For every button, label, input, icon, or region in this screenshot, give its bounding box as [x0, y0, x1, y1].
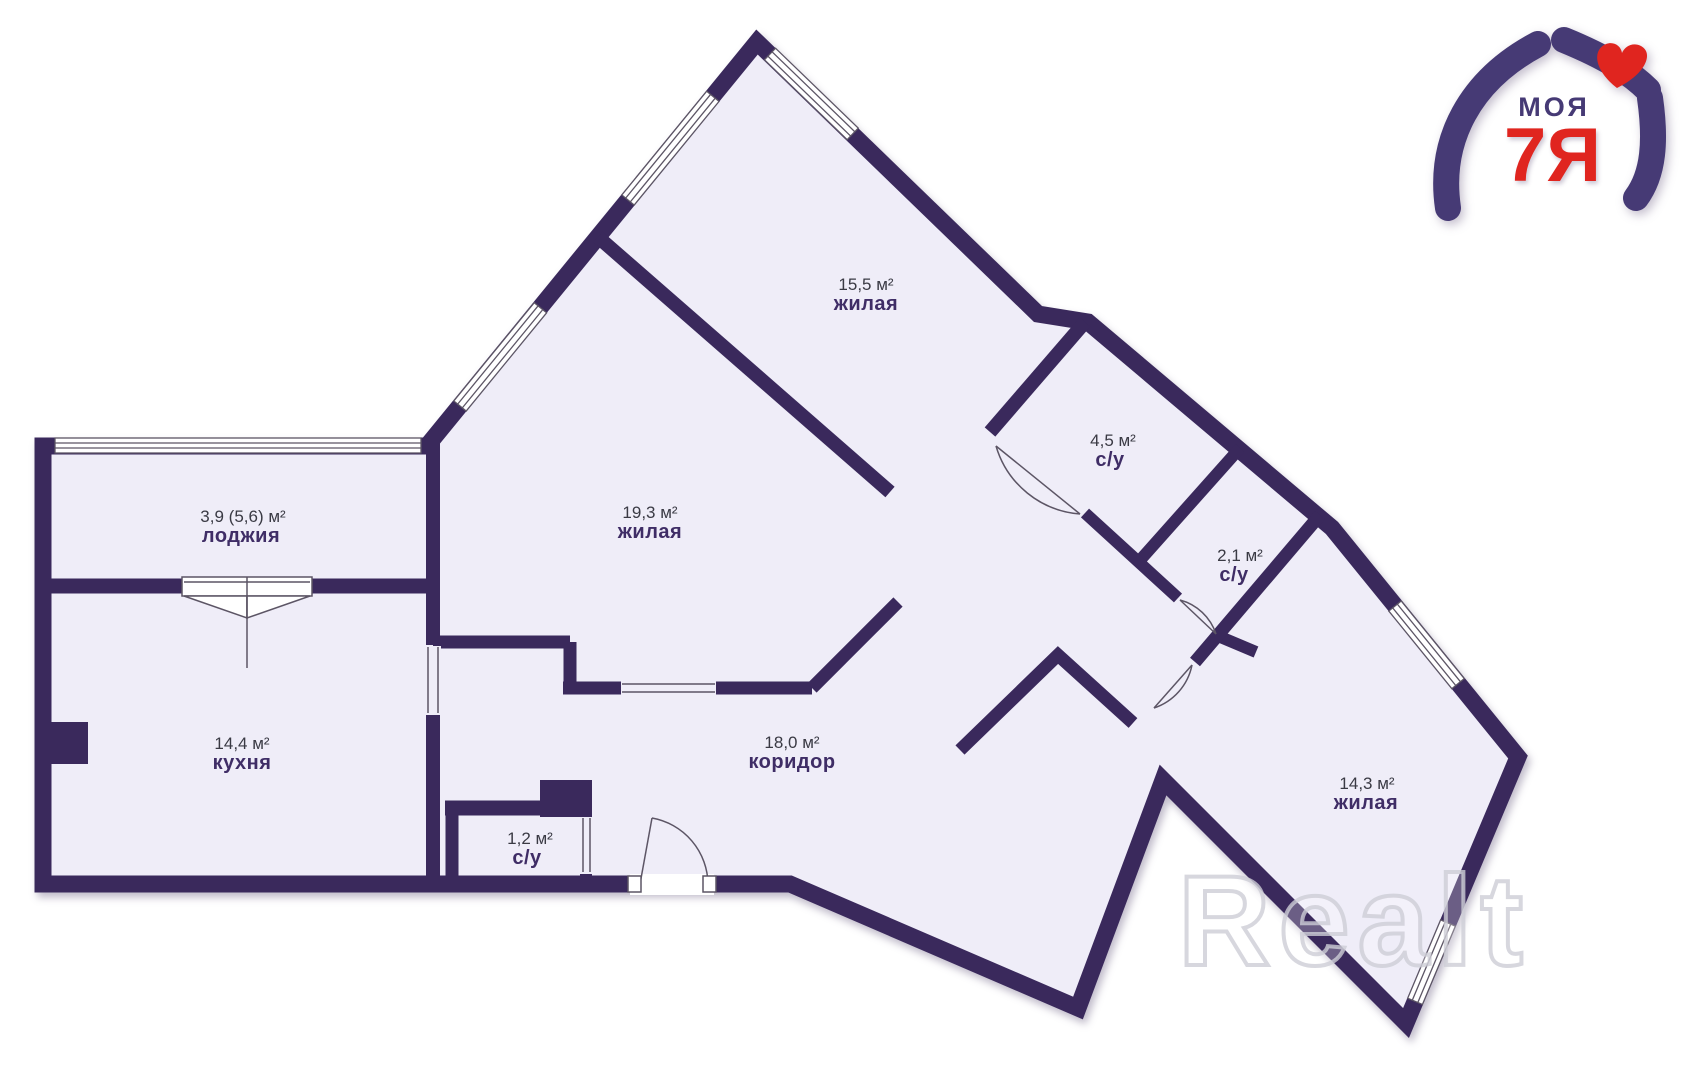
agency-logo: МОЯ 7Я: [1412, 22, 1682, 237]
room-name-living-19-3: жилая: [617, 521, 682, 543]
room-area-living-14-3: 14,3 м²: [1339, 774, 1394, 793]
room-area-corridor: 18,0 м²: [764, 733, 819, 752]
kitchen-door: [425, 646, 441, 714]
room-name-corridor: коридор: [748, 751, 835, 773]
room-area-kitchen: 14,4 м²: [214, 734, 269, 753]
room-name-loggia: лоджия: [202, 525, 280, 547]
room-area-bathroom-2-1: 2,1 м²: [1217, 546, 1263, 565]
room-name-bathroom-2-1: с/у: [1219, 564, 1249, 586]
room-area-living-15-5: 15,5 м²: [838, 275, 893, 294]
logo-right-arm-lower: [1636, 98, 1653, 198]
corridor-opening: [621, 680, 716, 696]
room-name-living-14-3: жилая: [1333, 792, 1398, 814]
vent-shaft-block: [540, 780, 592, 817]
kitchen-notch-block: [35, 722, 88, 764]
room-name-bathroom-4-5: с/у: [1095, 449, 1125, 471]
room-area-bathroom-4-5: 4,5 м²: [1090, 431, 1136, 450]
room-name-living-15-5: жилая: [833, 293, 898, 315]
room-name-kitchen: кухня: [213, 752, 272, 774]
loggia-window: [55, 438, 421, 453]
floorplan-image: 15,5 м² жилая 19,3 м² жилая 3,9 (5,6) м²…: [0, 0, 1695, 1080]
room-area-bathroom-1-2: 1,2 м²: [507, 829, 553, 848]
realt-watermark: Realt: [1178, 848, 1695, 995]
logo-mark: 7Я: [1480, 116, 1625, 196]
room-name-bathroom-1-2: с/у: [512, 847, 542, 869]
room-area-living-19-3: 19,3 м²: [622, 503, 677, 522]
room-area-loggia: 3,9 (5,6) м²: [200, 507, 286, 526]
